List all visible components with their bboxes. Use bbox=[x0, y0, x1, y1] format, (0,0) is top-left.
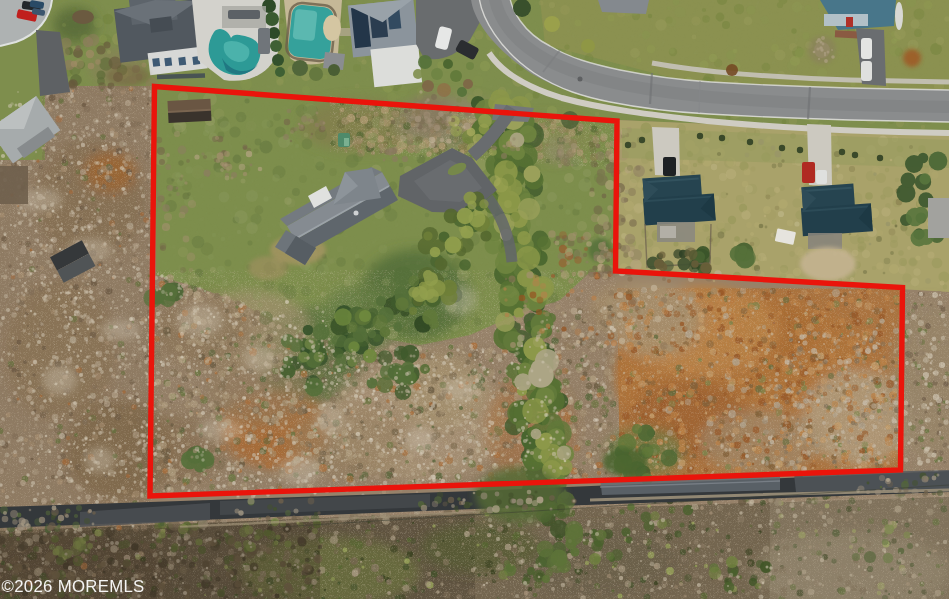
svg-text:©2026 MOREMLS: ©2026 MOREMLS bbox=[2, 577, 145, 596]
